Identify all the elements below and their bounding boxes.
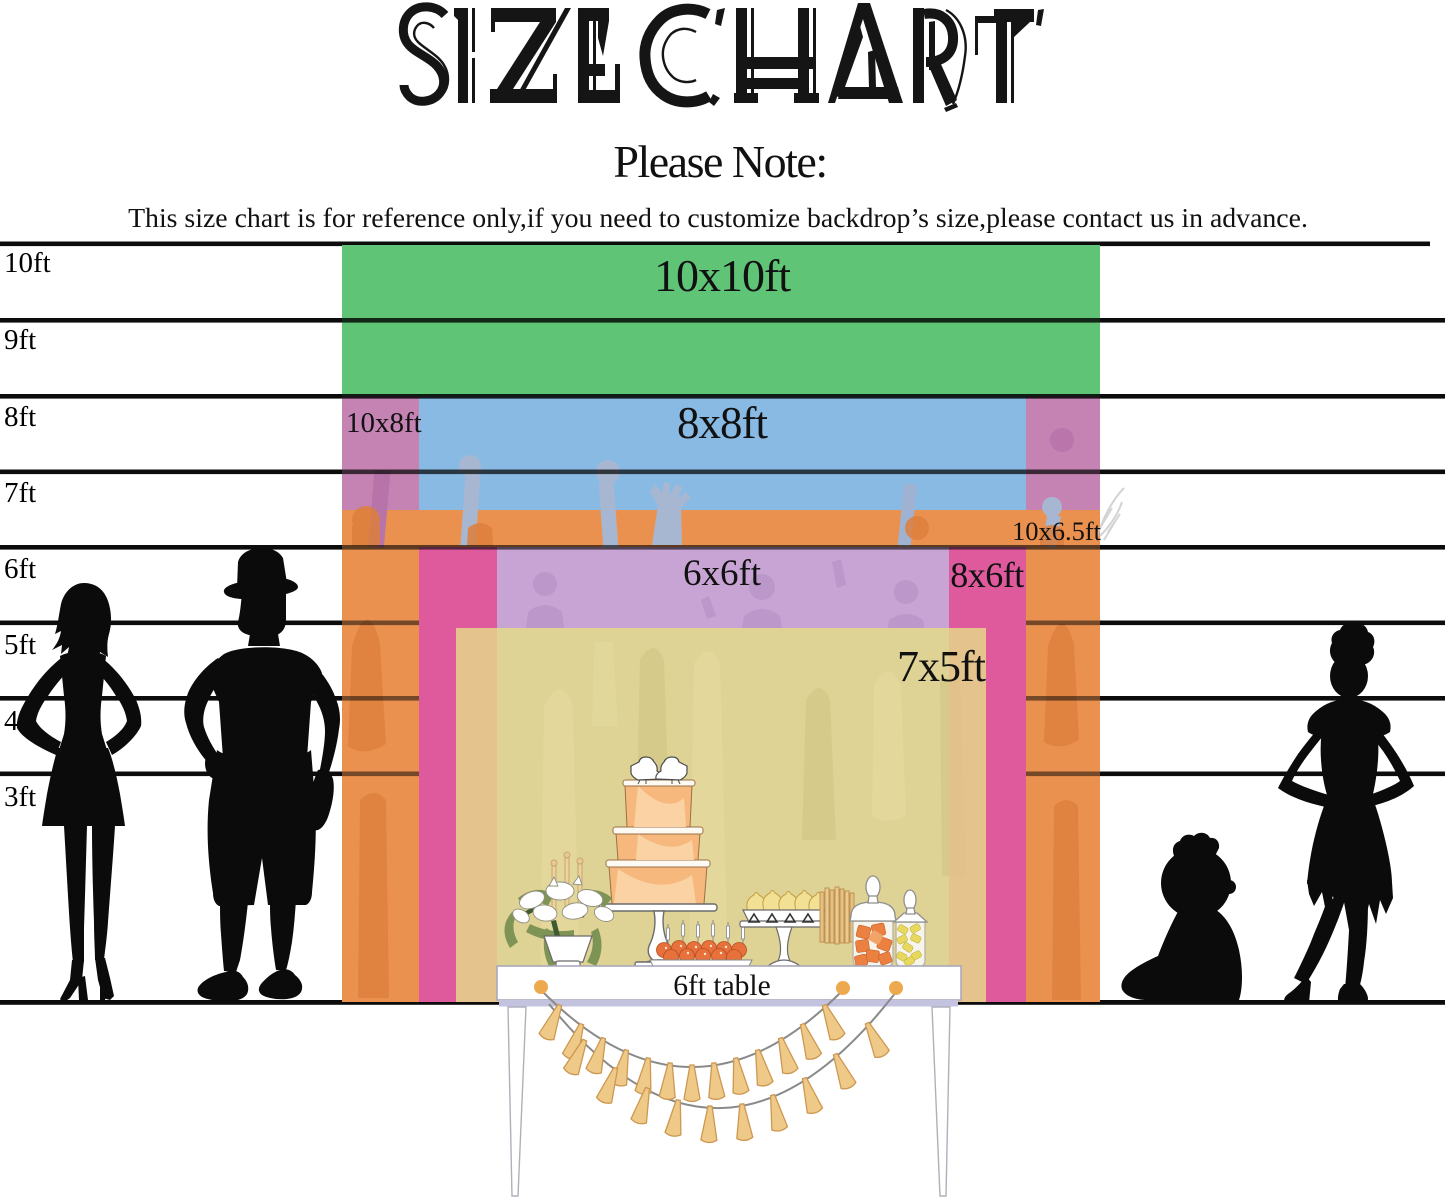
svg-text:8x8ft: 8x8ft bbox=[677, 398, 768, 448]
svg-text:7ft: 7ft bbox=[4, 477, 36, 509]
svg-text:6x6ft: 6x6ft bbox=[683, 553, 762, 594]
svg-text:8x6ft: 8x6ft bbox=[950, 555, 1024, 595]
svg-text:10ft: 10ft bbox=[4, 247, 51, 279]
svg-text:3ft: 3ft bbox=[4, 781, 36, 813]
svg-text:10x8ft: 10x8ft bbox=[346, 407, 422, 439]
svg-text:Please Note:: Please Note: bbox=[613, 136, 826, 187]
svg-text:10x6.5ft: 10x6.5ft bbox=[1012, 516, 1102, 546]
svg-text:7x5ft: 7x5ft bbox=[897, 642, 986, 691]
svg-text:6ft table: 6ft table bbox=[673, 970, 770, 1002]
svg-text:This size chart is for referen: This size chart is for reference only,if… bbox=[128, 203, 1308, 234]
svg-text:10x10ft: 10x10ft bbox=[654, 250, 791, 301]
svg-text:8ft: 8ft bbox=[4, 401, 36, 433]
svg-text:5ft: 5ft bbox=[4, 629, 36, 661]
svg-text:6ft: 6ft bbox=[4, 553, 36, 585]
svg-text:9ft: 9ft bbox=[4, 324, 36, 356]
